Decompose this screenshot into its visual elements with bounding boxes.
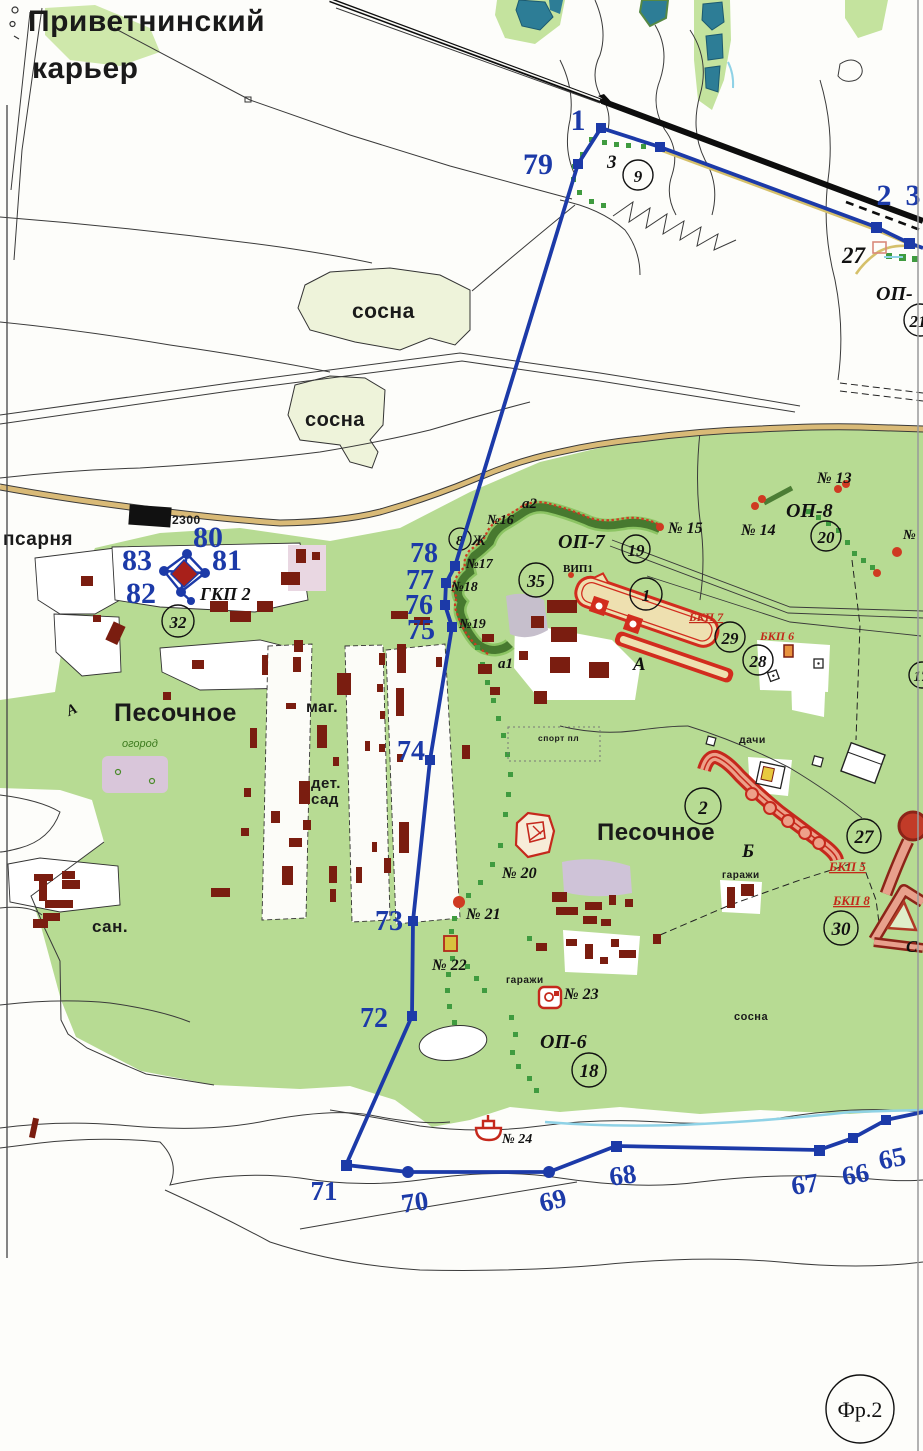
- svg-text:30: 30: [831, 919, 852, 940]
- svg-text:73: 73: [375, 906, 403, 937]
- svg-text:гаражи: гаражи: [506, 975, 544, 986]
- svg-text:18: 18: [580, 1061, 600, 1082]
- svg-text:3: 3: [606, 152, 617, 173]
- svg-text:ОП-6: ОП-6: [540, 1031, 587, 1053]
- svg-text:ОП-7: ОП-7: [558, 531, 606, 553]
- svg-text:псарня: псарня: [3, 529, 73, 550]
- svg-text:68: 68: [607, 1158, 638, 1191]
- svg-text:А: А: [632, 654, 646, 675]
- svg-text:БКП 7: БКП 7: [688, 610, 724, 624]
- svg-text:20: 20: [817, 528, 836, 547]
- svg-text:сосна: сосна: [352, 300, 415, 323]
- svg-text:ВИП1: ВИП1: [563, 563, 593, 575]
- svg-text:БКП 5: БКП 5: [828, 859, 866, 874]
- svg-text:а1: а1: [498, 656, 513, 672]
- svg-text:32: 32: [169, 613, 188, 632]
- svg-text:сан.: сан.: [92, 917, 128, 936]
- svg-text:27: 27: [841, 243, 867, 268]
- svg-text:сад: сад: [311, 791, 339, 808]
- svg-text:35: 35: [526, 571, 545, 591]
- svg-text:а2: а2: [522, 496, 538, 512]
- svg-text:72: 72: [360, 1003, 388, 1034]
- svg-text:БКП 8: БКП 8: [832, 893, 870, 908]
- svg-text:дет.: дет.: [311, 775, 341, 792]
- svg-text:Песочное: Песочное: [114, 699, 237, 727]
- svg-text:27: 27: [854, 827, 876, 848]
- svg-text:79: 79: [523, 148, 553, 181]
- svg-text:№ 21: № 21: [465, 906, 501, 923]
- svg-text:21: 21: [909, 312, 923, 331]
- svg-text:№ 15: № 15: [667, 520, 703, 537]
- svg-text:29: 29: [721, 629, 740, 648]
- svg-text:№ 22: № 22: [431, 957, 467, 974]
- svg-text:66: 66: [840, 1157, 872, 1191]
- svg-text:74: 74: [397, 736, 425, 767]
- svg-text:карьер: карьер: [32, 52, 138, 85]
- svg-text:ОП-: ОП-: [876, 283, 913, 305]
- svg-text:ОП-8: ОП-8: [786, 500, 833, 522]
- svg-text:дачи: дачи: [739, 734, 766, 746]
- svg-text:Фр.2: Фр.2: [838, 1397, 883, 1422]
- svg-text:ГКП 2: ГКП 2: [199, 584, 251, 604]
- svg-text:маг.: маг.: [306, 699, 338, 716]
- svg-text:Б: Б: [741, 841, 754, 862]
- svg-text:№18: №18: [450, 580, 478, 595]
- svg-text:№17: №17: [465, 557, 494, 572]
- svg-text:2: 2: [877, 179, 892, 212]
- svg-text:сосна: сосна: [305, 409, 365, 431]
- svg-text:Ж: Ж: [471, 533, 487, 549]
- svg-text:гаражи: гаражи: [722, 870, 760, 881]
- svg-text:№ 13: № 13: [816, 470, 852, 487]
- svg-text:1: 1: [642, 586, 651, 605]
- svg-text:9: 9: [634, 167, 643, 186]
- svg-text:67: 67: [789, 1167, 820, 1200]
- svg-text:1: 1: [571, 104, 586, 137]
- svg-text:75: 75: [407, 615, 435, 646]
- svg-text:№ 23: № 23: [563, 986, 599, 1003]
- svg-text:№ 20: № 20: [501, 865, 537, 882]
- svg-text:28: 28: [749, 652, 768, 671]
- svg-text:83: 83: [122, 544, 152, 577]
- svg-text:спорт пл: спорт пл: [538, 733, 579, 743]
- svg-text:№19: №19: [458, 617, 486, 632]
- svg-text:2: 2: [697, 798, 708, 819]
- svg-text:БКП 6: БКП 6: [759, 629, 794, 643]
- svg-text:70: 70: [399, 1185, 430, 1218]
- svg-text:71: 71: [311, 1176, 338, 1206]
- svg-text:№: №: [902, 528, 916, 543]
- svg-text:№ 14: № 14: [740, 522, 776, 539]
- svg-text:№16: №16: [486, 513, 514, 528]
- svg-text:С: С: [906, 937, 918, 956]
- svg-text:Песочное: Песочное: [597, 819, 715, 846]
- svg-text:82: 82: [126, 577, 156, 610]
- svg-text:81: 81: [212, 544, 242, 577]
- svg-text:сосна: сосна: [734, 1011, 768, 1023]
- svg-text:№ 24: № 24: [501, 1132, 532, 1147]
- svg-text:огород: огород: [122, 738, 158, 750]
- svg-text:19: 19: [628, 541, 646, 560]
- svg-text:Приветнинский: Приветнинский: [28, 5, 265, 38]
